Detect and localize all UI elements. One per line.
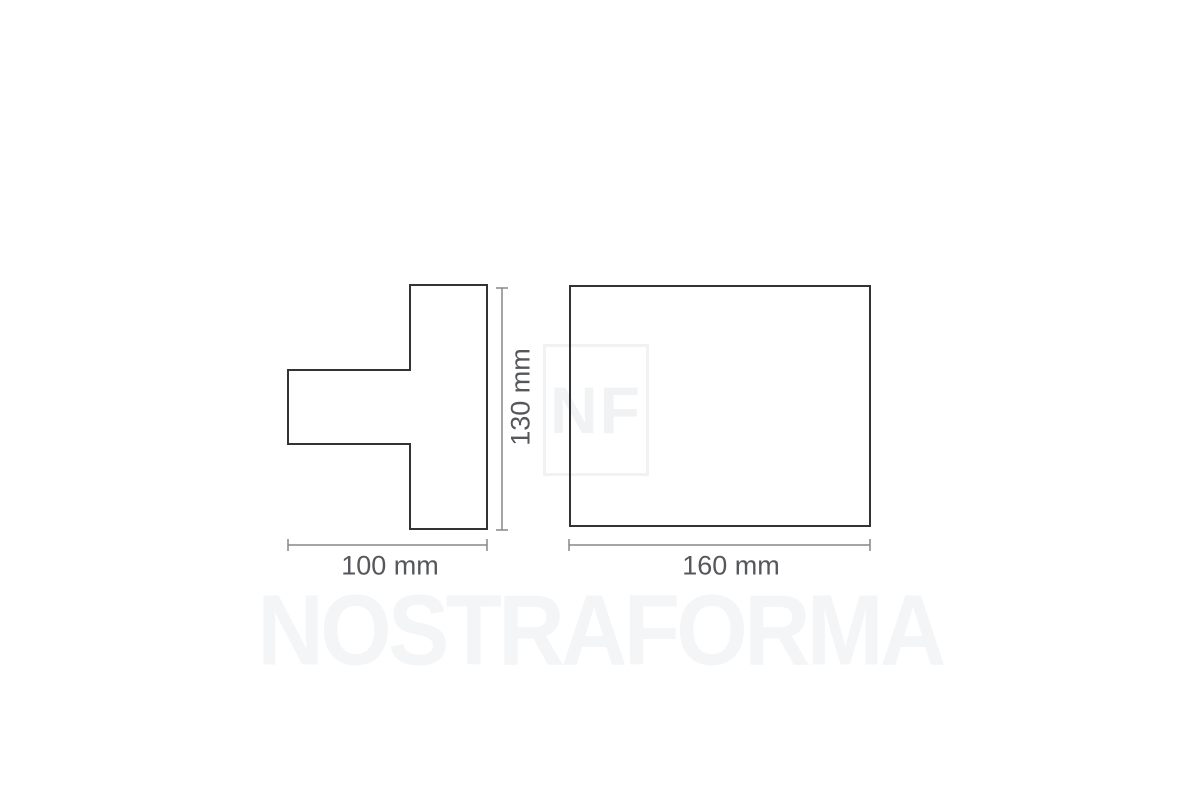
right-width-dimension-label: 160 mm — [682, 551, 780, 582]
dimension-diagram-canvas: NOSTRAFORMA NF 100 mm 160 mm 13 — [0, 0, 1200, 800]
right-view-outline — [570, 286, 870, 526]
technical-drawing — [0, 0, 1200, 800]
height-dimension-label: 130 mm — [506, 348, 537, 446]
left-width-dimension-label: 100 mm — [341, 551, 439, 582]
right-width-dimension-line — [569, 539, 870, 551]
left-view-outline — [288, 285, 487, 529]
left-width-dimension-line — [288, 539, 487, 551]
